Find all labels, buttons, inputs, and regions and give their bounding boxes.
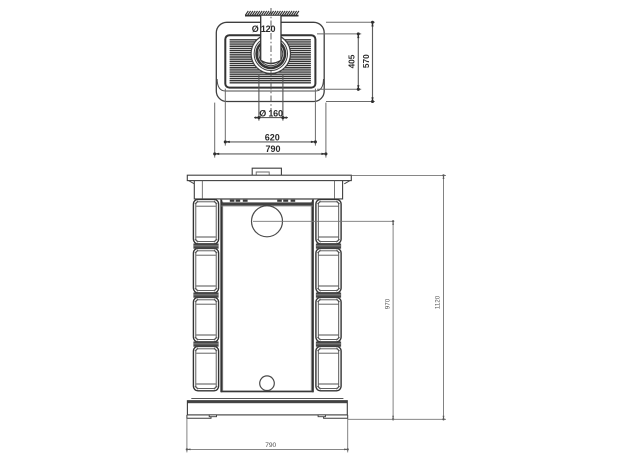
svg-text:790: 790 xyxy=(265,144,280,154)
svg-text:Ø 160: Ø 160 xyxy=(259,109,283,119)
svg-text:970: 970 xyxy=(384,298,391,309)
svg-text:620: 620 xyxy=(265,132,280,142)
svg-text:1120: 1120 xyxy=(435,295,442,309)
svg-text:570: 570 xyxy=(361,54,371,68)
svg-text:405: 405 xyxy=(346,54,356,68)
svg-text:Ø 120: Ø 120 xyxy=(252,24,276,34)
svg-text:790: 790 xyxy=(265,442,276,449)
